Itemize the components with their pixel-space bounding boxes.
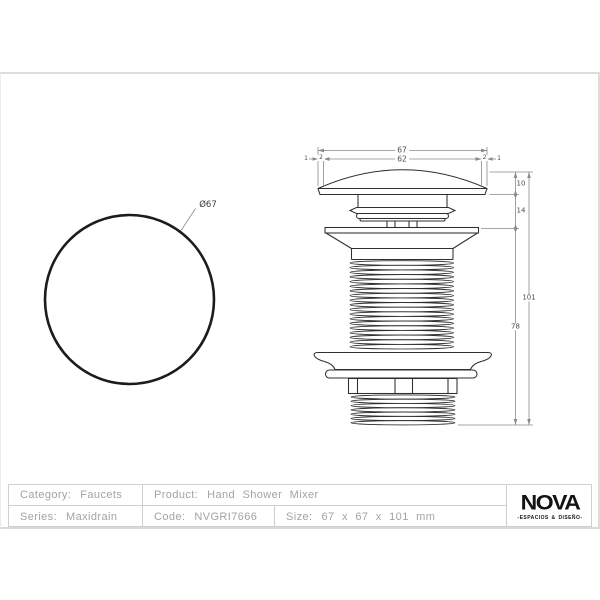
brand-logo: NOVA -ESPACIOS & DISEÑO- xyxy=(507,485,593,527)
upper-threads xyxy=(350,261,454,349)
front-view-circle xyxy=(45,209,214,385)
lower-threads xyxy=(351,395,455,425)
code-value: NVGRI7666 xyxy=(194,511,257,523)
product-spec-sheet: Ø67 67 62 1 2 2 1 10 14 78 101 Category:… xyxy=(0,0,600,600)
size-label: Size: xyxy=(286,511,312,523)
dim-edge-left-inner: 2 xyxy=(317,155,325,161)
dim-width-total: 67 xyxy=(395,146,409,154)
series-label: Series: xyxy=(20,511,57,523)
product-value: Hand Shower Mixer xyxy=(207,489,318,501)
spec-table: Category: Faucets Product: Hand Shower M… xyxy=(8,484,592,527)
brand-tagline: -ESPACIOS & DISEÑO- xyxy=(518,515,583,521)
dim-cap-height: 10 xyxy=(517,180,526,187)
dim-width-inner: 62 xyxy=(395,155,409,163)
dim-body-height: 78 xyxy=(509,324,522,331)
category-cell: Category: Faucets xyxy=(9,485,143,506)
brand-name: NOVA xyxy=(521,492,580,513)
dim-edge-left-outer: 1 xyxy=(304,156,308,162)
dim-neck-height: 14 xyxy=(517,208,526,215)
size-value: 67 x 67 x 101 mm xyxy=(321,511,435,523)
diameter-label: Ø67 xyxy=(199,201,217,210)
category-value: Faucets xyxy=(80,489,122,501)
dim-edge-right-outer: 1 xyxy=(497,156,501,162)
series-cell: Series: Maxidrain xyxy=(9,506,143,527)
dim-total-height: 101 xyxy=(520,295,537,302)
code-cell: Code: NVGRI7666 xyxy=(143,506,275,527)
code-label: Code: xyxy=(154,511,185,523)
series-value: Maxidrain xyxy=(66,511,117,523)
product-label: Product: xyxy=(154,489,198,501)
product-cell: Product: Hand Shower Mixer xyxy=(143,485,507,506)
side-view-body xyxy=(314,170,491,425)
dim-edge-right-inner: 2 xyxy=(481,155,489,161)
size-cell: Size: 67 x 67 x 101 mm xyxy=(275,506,507,527)
category-label: Category: xyxy=(20,489,71,501)
